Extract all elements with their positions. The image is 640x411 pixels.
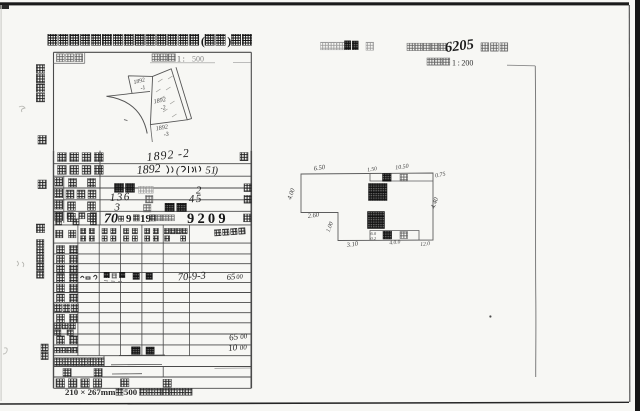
svg-text:00: 00 [240, 332, 249, 341]
svg-text:6205: 6205 [444, 37, 475, 56]
svg-text:00: 00 [236, 273, 244, 281]
svg-text:65: 65 [226, 271, 235, 282]
svg-text:): ) [214, 166, 219, 177]
svg-text:10.50: 10.50 [395, 164, 409, 172]
svg-text:12.0: 12.0 [420, 241, 430, 248]
svg-text:(: ( [176, 166, 181, 177]
svg-text:1 : 200: 1 : 200 [452, 59, 473, 68]
svg-text:136: 136 [110, 191, 132, 204]
svg-text:9209: 9209 [187, 211, 229, 227]
svg-text:9: 9 [126, 213, 132, 225]
svg-text:3.10: 3.10 [345, 240, 359, 249]
svg-text:1.50: 1.50 [367, 166, 378, 173]
svg-text:70: 70 [104, 212, 118, 227]
svg-text:1892: 1892 [136, 161, 161, 177]
svg-text:): ) [227, 34, 231, 48]
svg-text:4.0.0: 4.0.0 [389, 238, 401, 246]
svg-text:6.50: 6.50 [313, 164, 326, 173]
svg-text:4.40: 4.40 [430, 196, 441, 210]
svg-text:210 × 267mm: 210 × 267mm [65, 387, 116, 397]
svg-text:1 :: 1 : [177, 55, 186, 64]
svg-text:70-9-3: 70-9-3 [177, 271, 206, 284]
svg-text:45: 45 [189, 193, 204, 206]
svg-text:-1: -1 [140, 85, 146, 92]
svg-text:00: 00 [239, 343, 247, 352]
svg-text:65: 65 [228, 331, 239, 342]
svg-text:-2: -2 [160, 104, 166, 112]
svg-text:0.2: 0.2 [371, 236, 377, 241]
svg-text:500: 500 [192, 55, 204, 64]
svg-text:10: 10 [228, 342, 238, 353]
svg-text:0.75: 0.75 [435, 171, 447, 179]
svg-text:2.60: 2.60 [307, 211, 320, 220]
svg-text:1.00: 1.00 [326, 221, 335, 233]
svg-text:500: 500 [124, 387, 138, 397]
svg-text:4.00: 4.00 [286, 187, 297, 201]
svg-text:-3: -3 [163, 131, 169, 139]
svg-text:(: ( [201, 34, 205, 48]
